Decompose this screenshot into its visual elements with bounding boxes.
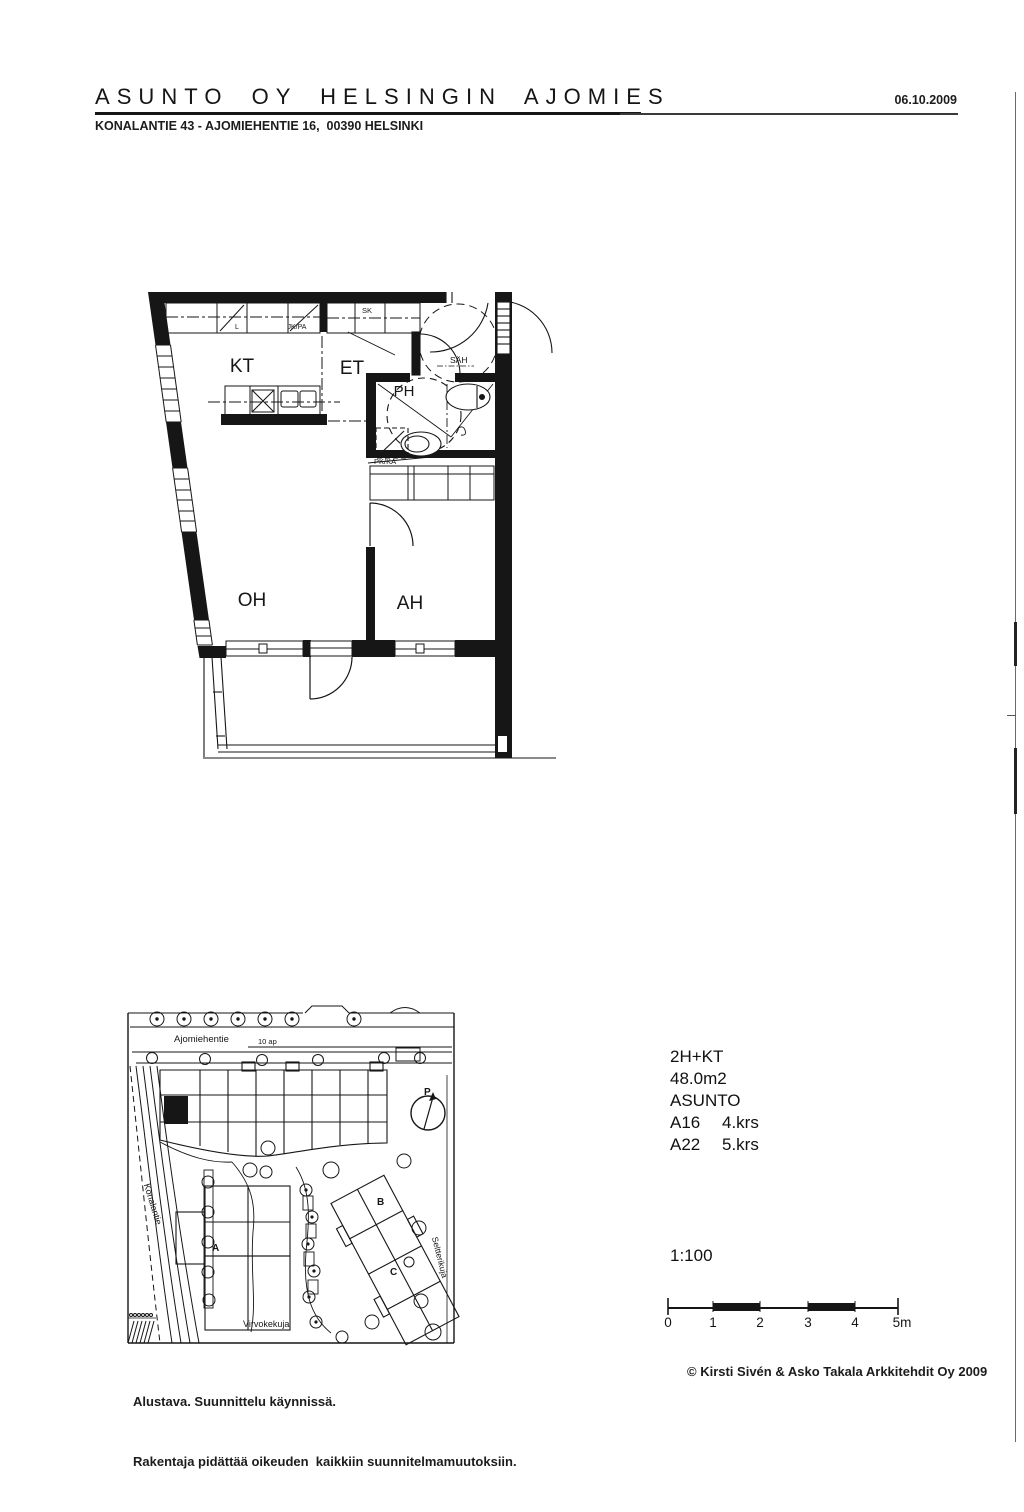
header-rule-extension bbox=[620, 113, 958, 115]
building-a-label: A bbox=[212, 1243, 219, 1254]
unit-id: A16 bbox=[670, 1112, 722, 1134]
page-edge-tick bbox=[1007, 715, 1016, 716]
copyright: © Kirsti Sivén & Asko Takala Arkkitehdit… bbox=[687, 1364, 987, 1379]
apartment-info: 2H+KT 48.0m2 ASUNTO A16 4.krs A22 5.krs bbox=[670, 1046, 759, 1156]
site-plan-drawing: Ajomiehentie 10 ap bbox=[122, 1005, 462, 1350]
scale-tick: 1 bbox=[709, 1315, 717, 1330]
compass-label: P bbox=[424, 1087, 431, 1098]
street-south-label: Virvokekuja bbox=[243, 1319, 289, 1329]
building-b-label: B bbox=[377, 1197, 384, 1208]
kitchen-label: KT bbox=[230, 356, 255, 377]
bedroom-door bbox=[370, 503, 413, 546]
status-notes: Alustava. Suunnittelu käynnissä. Rakenta… bbox=[133, 1352, 517, 1512]
closet-label: L bbox=[235, 324, 239, 331]
entry-label: ET bbox=[340, 358, 365, 379]
header-rule bbox=[95, 112, 641, 115]
project-address: KONALANTIE 43 - AJOMIEHENTIE 16, 00390 H… bbox=[95, 119, 423, 133]
unit-row: A22 5.krs bbox=[670, 1134, 759, 1156]
scale-bar-graphic bbox=[668, 1298, 898, 1315]
apartment-area: 48.0m2 bbox=[670, 1068, 759, 1090]
bathroom-door bbox=[412, 332, 460, 375]
cleaning-closet-label: SK bbox=[362, 306, 372, 315]
south-windows bbox=[226, 641, 455, 656]
unit-floor: 4.krs bbox=[722, 1112, 759, 1134]
cleaning-closet bbox=[327, 303, 420, 333]
project-title: ASUNTO OY HELSINGIN AJOMIES bbox=[95, 84, 670, 110]
apartment-location-marker bbox=[164, 1096, 188, 1124]
status-note-2: Rakentaja pidättää oikeuden kaikkiin suu… bbox=[133, 1452, 517, 1472]
north-street bbox=[128, 1006, 454, 1343]
entry-turning-circle bbox=[419, 304, 497, 382]
unit-row: A16 4.krs bbox=[670, 1112, 759, 1134]
scale-tick: 2 bbox=[756, 1315, 764, 1330]
floor-plan-drawing: SÄH L JK/PA SK bbox=[140, 280, 570, 770]
building-c-label: C bbox=[390, 1267, 397, 1278]
scale-tick: 5m bbox=[893, 1315, 912, 1330]
balcony-door bbox=[310, 657, 352, 699]
entry-guide-line bbox=[348, 332, 395, 355]
title-block: ASUNTO OY HELSINGIN AJOMIES 06.10.2009 bbox=[95, 84, 957, 110]
unit-id: A22 bbox=[670, 1134, 722, 1156]
scale-bar-ticks: 0 1 2 3 4 5m bbox=[664, 1315, 911, 1330]
scale-tick: 4 bbox=[851, 1315, 859, 1330]
fridge-label: JK/PA bbox=[288, 324, 307, 331]
kitchen-counter bbox=[208, 386, 340, 415]
street-north-label: Ajomiehentie bbox=[174, 1034, 229, 1045]
unit-floor: 5.krs bbox=[722, 1134, 759, 1156]
living-room-label: OH bbox=[238, 590, 267, 611]
scale-bar: 0 1 2 3 4 5m bbox=[655, 1290, 915, 1335]
drawing-scale: 1:100 bbox=[670, 1246, 713, 1266]
toilet bbox=[401, 432, 441, 456]
bedroom-label: AH bbox=[397, 593, 423, 614]
page-edge-mark bbox=[1014, 622, 1017, 666]
page-edge-mark bbox=[1014, 748, 1017, 814]
west-road bbox=[128, 1066, 199, 1343]
apartment-label: ASUNTO bbox=[670, 1090, 759, 1112]
parking-note: 10 ap bbox=[258, 1037, 277, 1046]
scale-tick: 0 bbox=[664, 1315, 672, 1330]
right-wall-notch bbox=[498, 736, 507, 752]
bathroom-label: PH bbox=[394, 383, 415, 400]
walkways bbox=[160, 1142, 331, 1333]
document-date: 06.10.2009 bbox=[894, 93, 957, 107]
main-building bbox=[160, 1062, 387, 1156]
apartment-type: 2H+KT bbox=[670, 1046, 759, 1068]
scale-tick: 3 bbox=[804, 1315, 812, 1330]
status-note-1: Alustava. Suunnittelu käynnissä. bbox=[133, 1392, 517, 1412]
